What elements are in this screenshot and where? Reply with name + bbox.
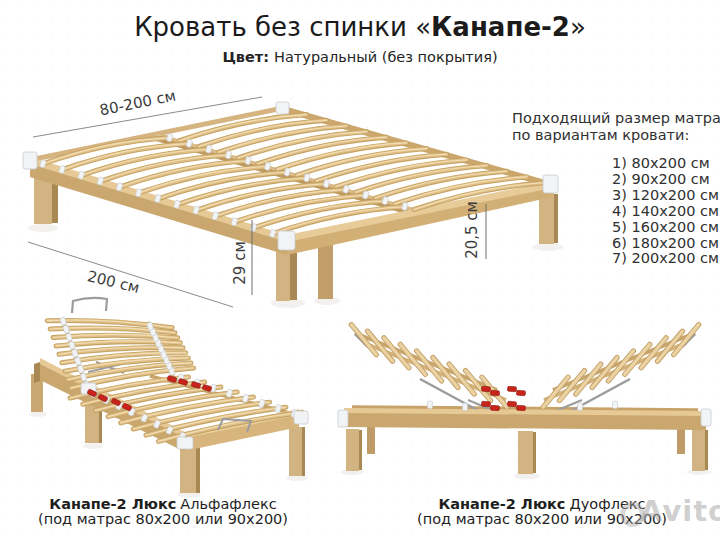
mattress-size-item: 4) 140x200 см	[612, 204, 719, 220]
mattress-size-item: 2) 90x200 см	[612, 172, 719, 188]
mattress-panel-heading: Подходящий размер матраса по вариантам к…	[512, 110, 720, 144]
mattress-size-item: 7) 200x200 см	[612, 251, 719, 267]
color-value: Натуральный (без покрытия)	[274, 49, 498, 65]
clearance-dimension-label: 20,5 см	[463, 201, 481, 259]
alphaflex-bed-illustration	[29, 298, 308, 498]
height-dimension-label: 29 см	[231, 241, 249, 284]
mattress-size-item: 3) 120x200 см	[612, 188, 719, 204]
mattress-heading-line2: по вариантам кровати:	[512, 127, 720, 144]
color-line: Цвет:Натуральный (без покрытия)	[0, 49, 720, 65]
variant-name: Канапе-2 Люкс	[49, 496, 176, 512]
variant-title: Канапе-2 ЛюксАльфафлекс	[28, 497, 298, 512]
bed-illustrations	[0, 0, 720, 540]
product-name: Канапе-2	[431, 12, 570, 42]
page-title: Кровать без спинки «Канапе-2»	[0, 12, 720, 42]
color-label: Цвет:	[222, 49, 269, 65]
product-infographic: Кровать без спинки «Канапе-2» Цвет:Натур…	[0, 0, 720, 540]
title-text: Кровать без спинки «	[134, 12, 431, 42]
variant-mattress-note: (под матрас 80x200 или 90x200)	[28, 512, 298, 527]
mattress-size-item: 1) 80x200 см	[612, 156, 719, 172]
avito-watermark: Avito	[640, 494, 720, 528]
duoflex-bed-illustration	[338, 325, 711, 480]
mattress-heading-line1: Подходящий размер матраса	[512, 110, 720, 127]
mattress-size-item: 6) 180x200 см	[612, 236, 719, 252]
variant-caption-alphaflex: Канапе-2 ЛюксАльфафлекс (под матрас 80x2…	[28, 497, 298, 528]
variant-name: Канапе-2 Люкс	[438, 496, 565, 512]
variant-type: Альфафлекс	[180, 496, 276, 512]
mattress-size-item: 5) 160x200 см	[612, 220, 719, 236]
mattress-size-list: 1) 80x200 см 2) 90x200 см 3) 120x200 см …	[612, 156, 719, 267]
title-suffix: »	[570, 12, 586, 42]
